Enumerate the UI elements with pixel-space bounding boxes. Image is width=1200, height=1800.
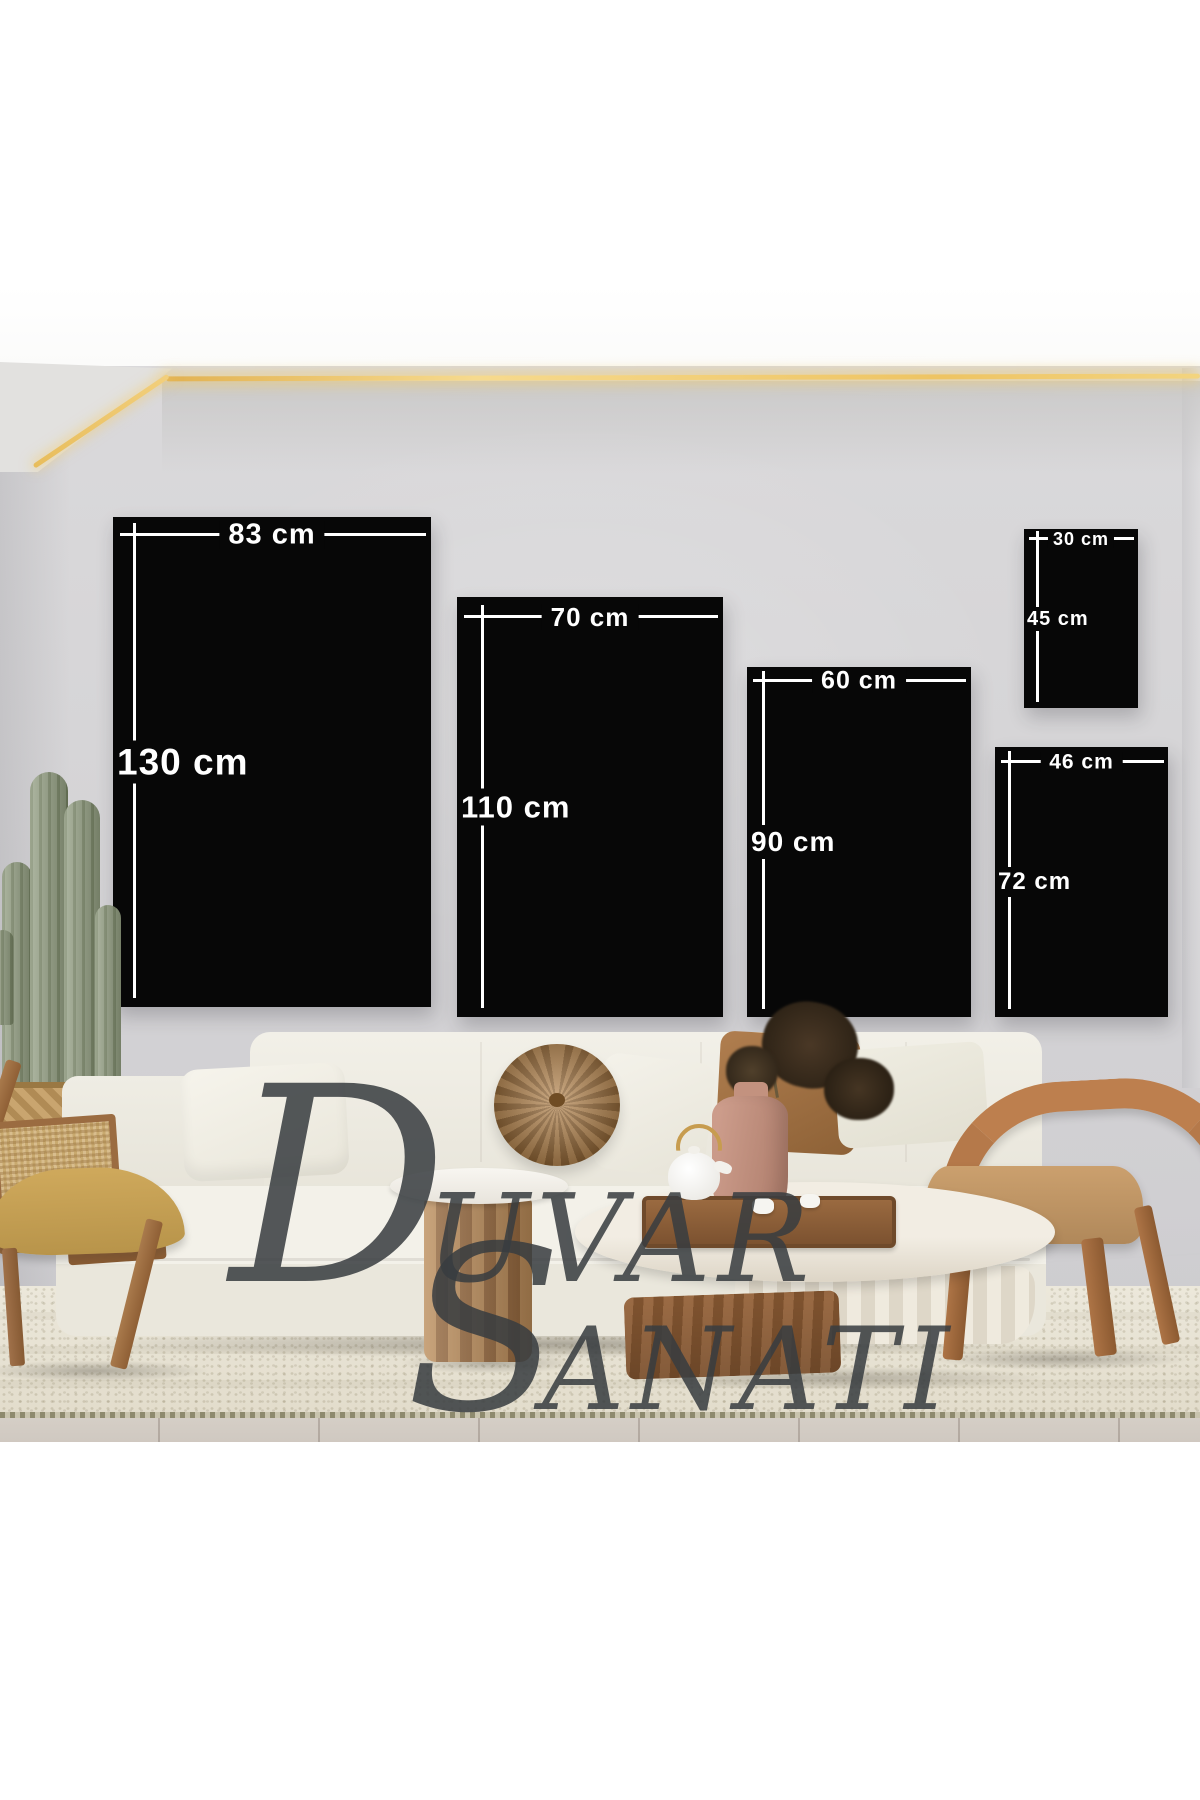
mockup-page: 83 cm 130 cm 70 cm 110 cm 60 cm 90 cm 46…	[0, 0, 1200, 1800]
ceiling	[0, 0, 1200, 366]
height-label: 110 cm	[461, 789, 577, 826]
wall-right-corner	[1182, 368, 1200, 1088]
led-glow-shadow	[162, 381, 1200, 473]
dried-flowers	[824, 1058, 894, 1120]
cactus-stem	[0, 930, 14, 1025]
canvas-panel-60x90: 60 cm 90 cm	[747, 667, 971, 1017]
right-chair-shadow	[930, 1348, 1190, 1370]
width-label: 46 cm	[1040, 752, 1123, 773]
height-label: 72 cm	[998, 867, 1078, 897]
canvas-panel-83x130: 83 cm 130 cm	[113, 517, 431, 1007]
watermark-initial: S	[406, 1197, 562, 1442]
width-label: 60 cm	[812, 669, 906, 694]
width-label: 83 cm	[219, 521, 324, 550]
width-label: 30 cm	[1048, 530, 1114, 548]
left-chair-shadow	[0, 1360, 210, 1382]
watermark-sanati: SANATI	[406, 1216, 956, 1442]
height-label: 90 cm	[751, 825, 842, 859]
watermark-text: ANATI	[542, 1303, 956, 1436]
living-room-photo: 83 cm 130 cm 70 cm 110 cm 60 cm 90 cm 46…	[0, 0, 1200, 1442]
height-label: 45 cm	[1027, 607, 1094, 631]
cactus-stem	[30, 772, 68, 1102]
canvas-panel-30x45: 30 cm 45 cm	[1024, 529, 1138, 708]
width-label: 70 cm	[542, 604, 639, 630]
canvas-panel-70x110: 70 cm 110 cm	[457, 597, 723, 1017]
cactus-stem	[95, 905, 121, 1103]
canvas-panel-46x72: 46 cm 72 cm	[995, 747, 1168, 1017]
height-label: 130 cm	[117, 741, 256, 784]
